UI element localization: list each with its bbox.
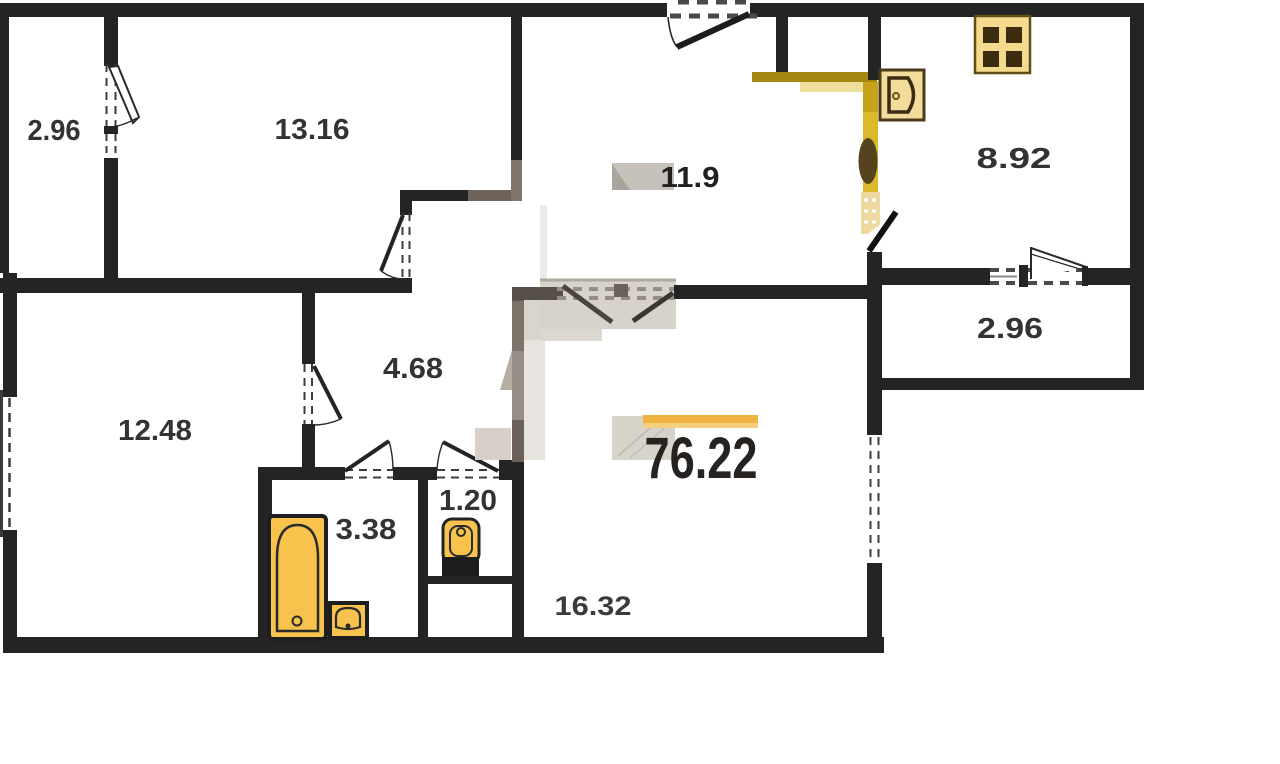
svg-text:12.48: 12.48 — [118, 415, 192, 447]
svg-text:3.38: 3.38 — [336, 514, 397, 546]
svg-text:2.96: 2.96 — [28, 115, 81, 147]
svg-text:1.20: 1.20 — [439, 485, 497, 517]
svg-text:11.9: 11.9 — [661, 162, 720, 194]
svg-text:2.96: 2.96 — [977, 313, 1043, 345]
svg-text:13.16: 13.16 — [275, 114, 350, 146]
svg-text:16.32: 16.32 — [555, 591, 632, 621]
svg-text:8.92: 8.92 — [977, 143, 1052, 175]
svg-text:4.68: 4.68 — [383, 353, 443, 385]
svg-text:76.22: 76.22 — [645, 426, 758, 491]
